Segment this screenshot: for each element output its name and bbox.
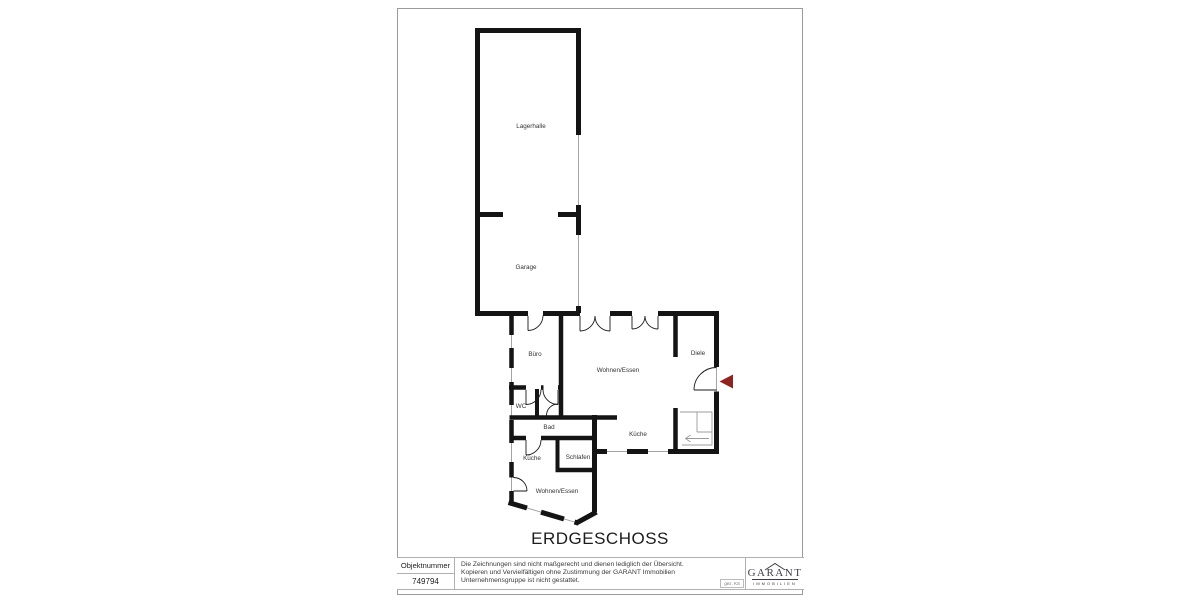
logo-name: GARANT xyxy=(748,568,803,578)
disclaimer-line-2: Kopieren und Vervielfältigen ohne Zustim… xyxy=(461,569,739,577)
disclaimer-line-1: Die Zeichnungen sind nicht maßgerecht un… xyxy=(461,561,739,569)
room-label-kueche-rechts: Küche xyxy=(629,431,647,438)
windows-layer xyxy=(509,135,717,523)
disclaimer-line-3: Unternehmensgruppe ist nicht gestattet. xyxy=(461,577,739,585)
company-logo: GARANT IMMOBILIEN xyxy=(746,558,804,589)
room-label-bad: Bad xyxy=(543,424,555,431)
entrance-arrow-icon xyxy=(720,375,734,389)
floorplan-drawing: Lagerhalle Garage Büro Wohnen/Essen Diel… xyxy=(0,0,1200,600)
door-swings-layer xyxy=(514,316,717,492)
disclaimer-cell: Die Zeichnungen sind nicht maßgerecht un… xyxy=(455,558,746,589)
floor-title: ERDGESCHOSS xyxy=(397,529,803,549)
room-label-wc: WC xyxy=(516,403,527,410)
object-number-label: Objektnummer xyxy=(397,558,454,574)
object-number-value: 749794 xyxy=(397,574,454,589)
floorplan-canvas: Lagerhalle Garage Büro Wohnen/Essen Diel… xyxy=(0,0,1200,600)
room-label-wohnen-essen-unten: Wohnen/Essen xyxy=(536,488,579,495)
room-label-diele: Diele xyxy=(691,350,706,357)
title-block: Objektnummer 749794 Die Zeichnungen sind… xyxy=(397,557,804,590)
door-swing xyxy=(543,390,558,405)
room-label-garage: Garage xyxy=(515,264,537,271)
door-swing xyxy=(528,316,543,331)
door-swing xyxy=(526,440,541,455)
object-number-cell: Objektnummer 749794 xyxy=(397,558,455,589)
drawn-by-badge: gez. KS xyxy=(720,579,744,588)
room-label-kueche-links: Küche xyxy=(523,455,541,462)
door-swing xyxy=(580,316,610,331)
room-label-lagerhalle: Lagerhalle xyxy=(516,123,546,130)
room-label-buero: Büro xyxy=(528,351,542,358)
door-swing-entrance xyxy=(694,368,717,391)
door-swing xyxy=(514,478,528,492)
logo-subtitle: IMMOBILIEN xyxy=(753,581,797,586)
staircase-symbol xyxy=(680,412,712,445)
door-swing xyxy=(547,404,559,416)
room-label-wohnen-essen: Wohnen/Essen xyxy=(597,367,640,374)
room-label-schlafen: Schlafen xyxy=(566,454,591,461)
logo-rule xyxy=(752,579,798,580)
door-swing xyxy=(632,316,658,329)
